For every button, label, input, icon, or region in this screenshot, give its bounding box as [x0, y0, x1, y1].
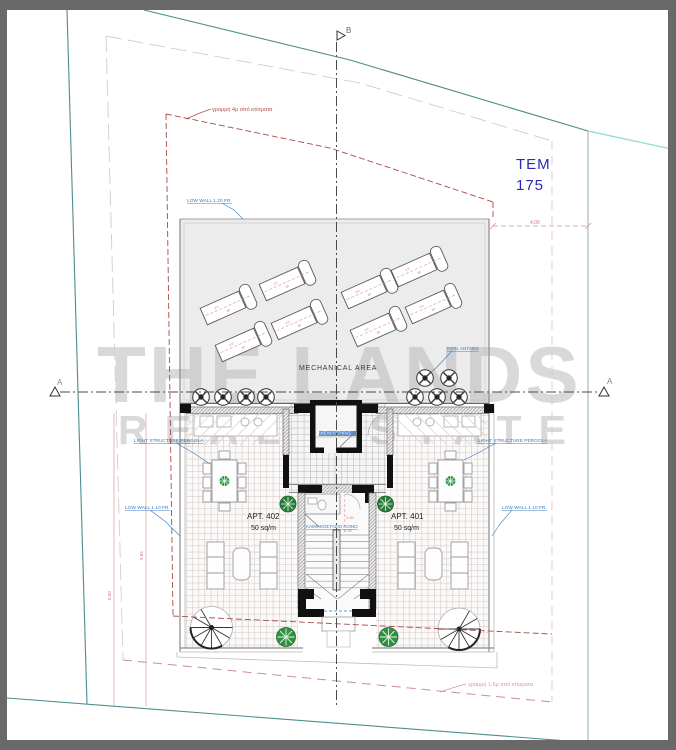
svg-text:LOW WALL 1.10 FR.: LOW WALL 1.10 FR.: [125, 505, 170, 511]
svg-text:B: B: [346, 26, 351, 35]
svg-text:50 sq/m: 50 sq/m: [394, 525, 419, 532]
svg-text:1.20: 1.20: [346, 515, 355, 520]
svg-text:4.00: 4.00: [530, 220, 540, 226]
svg-text:175: 175: [516, 177, 544, 194]
svg-text:2.20: 2.20: [344, 528, 353, 533]
svg-text:ΑΝΕΛΚΥΣΤΗΡΑΣ: ΑΝΕΛΚΥΣΤΗΡΑΣ: [318, 431, 351, 436]
svg-text:TEM: TEM: [516, 156, 551, 173]
svg-text:LIGHT STRUCTURE PERGOLA: LIGHT STRUCTURE PERGOLA: [134, 438, 204, 444]
svg-text:APT. 401: APT. 401: [391, 512, 424, 521]
svg-text:9.85: 9.85: [139, 551, 144, 560]
svg-text:LOW WALL 1.10 FR.: LOW WALL 1.10 FR.: [502, 505, 547, 511]
svg-text:MECHANICAL AREA: MECHANICAL AREA: [299, 365, 377, 372]
svg-text:A: A: [57, 378, 63, 387]
svg-text:A: A: [607, 377, 613, 386]
svg-text:LOW WALL 1.20 FR.: LOW WALL 1.20 FR.: [187, 198, 232, 204]
svg-text:γραμμή 4μ από κτίσματα: γραμμή 4μ από κτίσματα: [212, 106, 273, 113]
svg-text:APT. 402: APT. 402: [247, 512, 280, 521]
svg-text:LIGHT STRUCTURE PERGOLA: LIGHT STRUCTURE PERGOLA: [478, 438, 548, 444]
svg-text:5.50: 5.50: [107, 591, 112, 600]
svg-text:γραμμή 1.5μ από κτίσματα: γραμμή 1.5μ από κτίσματα: [468, 681, 534, 688]
svg-text:ΚΟΙΝ. ΑΝΤΛΙΕΣ: ΚΟΙΝ. ΑΝΤΛΙΕΣ: [447, 346, 479, 351]
svg-text:50 sq/m: 50 sq/m: [251, 525, 276, 532]
